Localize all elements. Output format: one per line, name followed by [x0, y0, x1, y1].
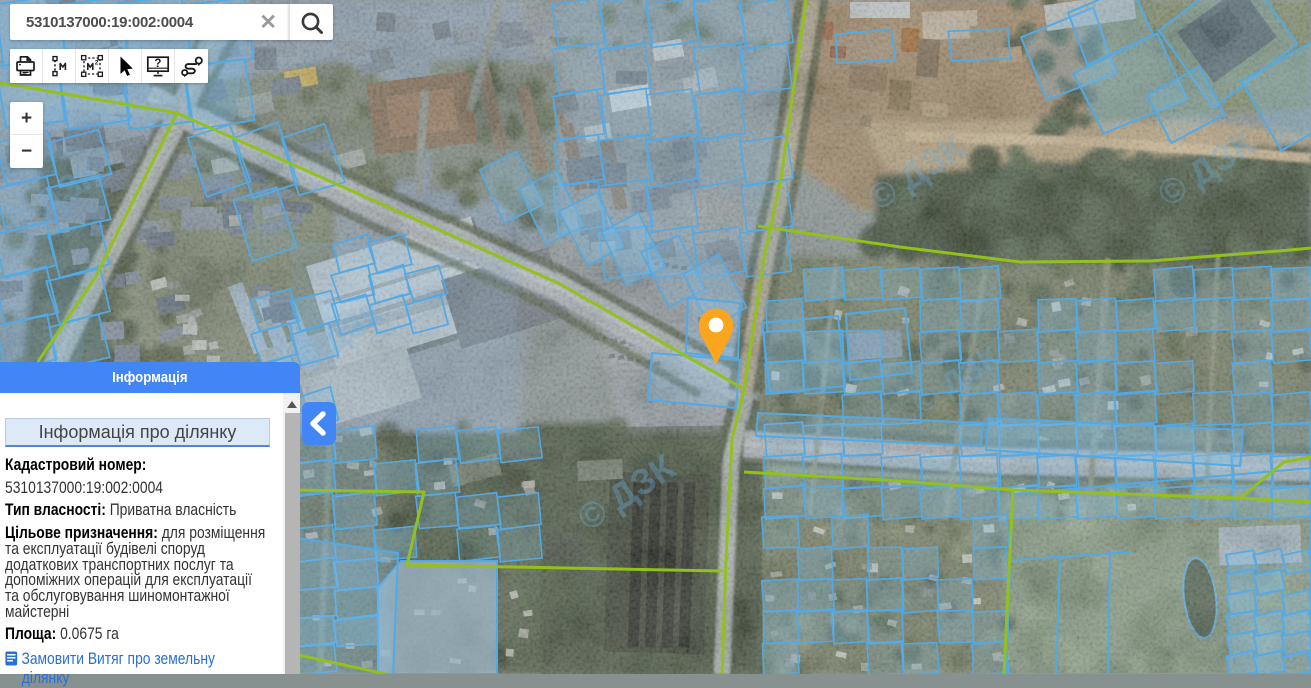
svg-text:?: ? — [154, 58, 161, 70]
svg-text:2: 2 — [95, 60, 99, 67]
